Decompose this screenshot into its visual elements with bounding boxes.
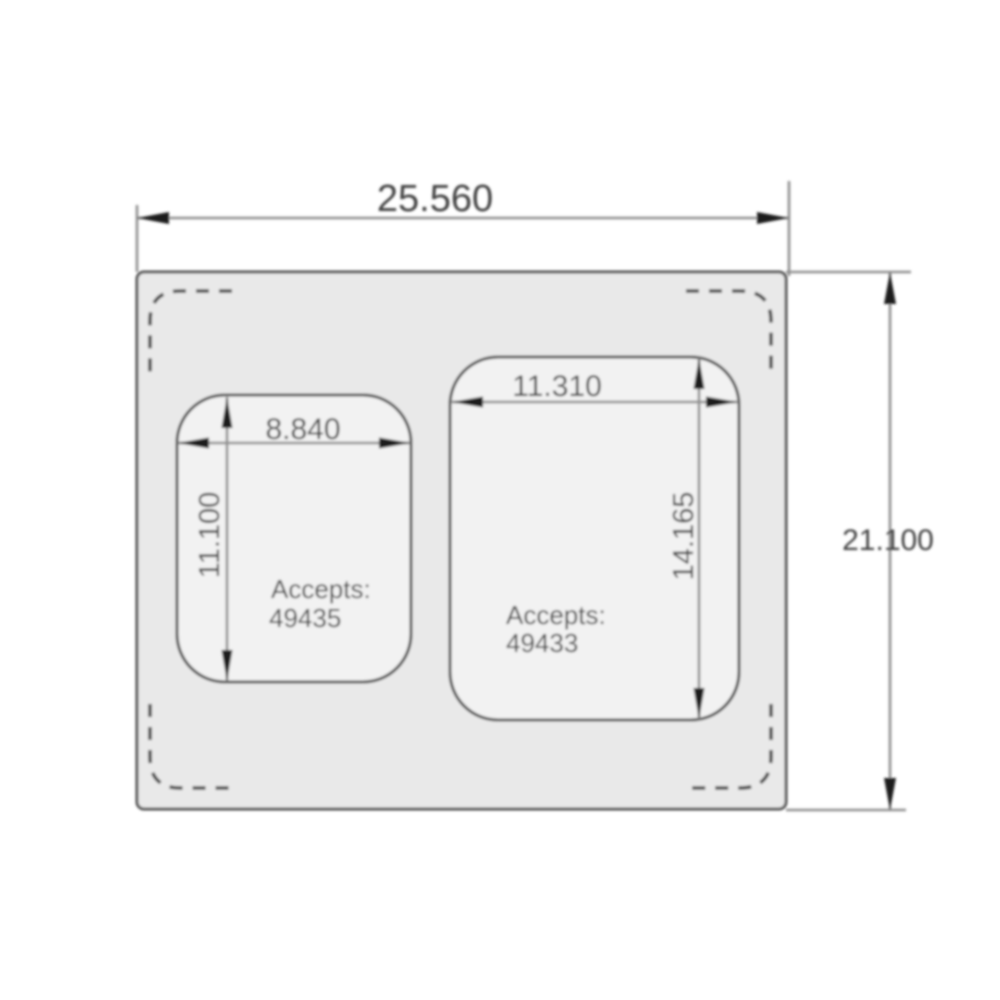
svg-text:11.310: 11.310 [512, 370, 602, 403]
svg-text:25.560: 25.560 [377, 178, 493, 220]
svg-text:49435: 49435 [269, 603, 341, 633]
svg-text:Accepts:: Accepts: [271, 574, 371, 604]
svg-text:Accepts:: Accepts: [506, 600, 606, 630]
svg-text:21.100: 21.100 [842, 524, 934, 557]
svg-text:8.840: 8.840 [265, 413, 340, 446]
svg-text:11.100: 11.100 [194, 492, 226, 579]
svg-text:14.165: 14.165 [668, 492, 700, 581]
svg-text:49433: 49433 [506, 628, 578, 658]
